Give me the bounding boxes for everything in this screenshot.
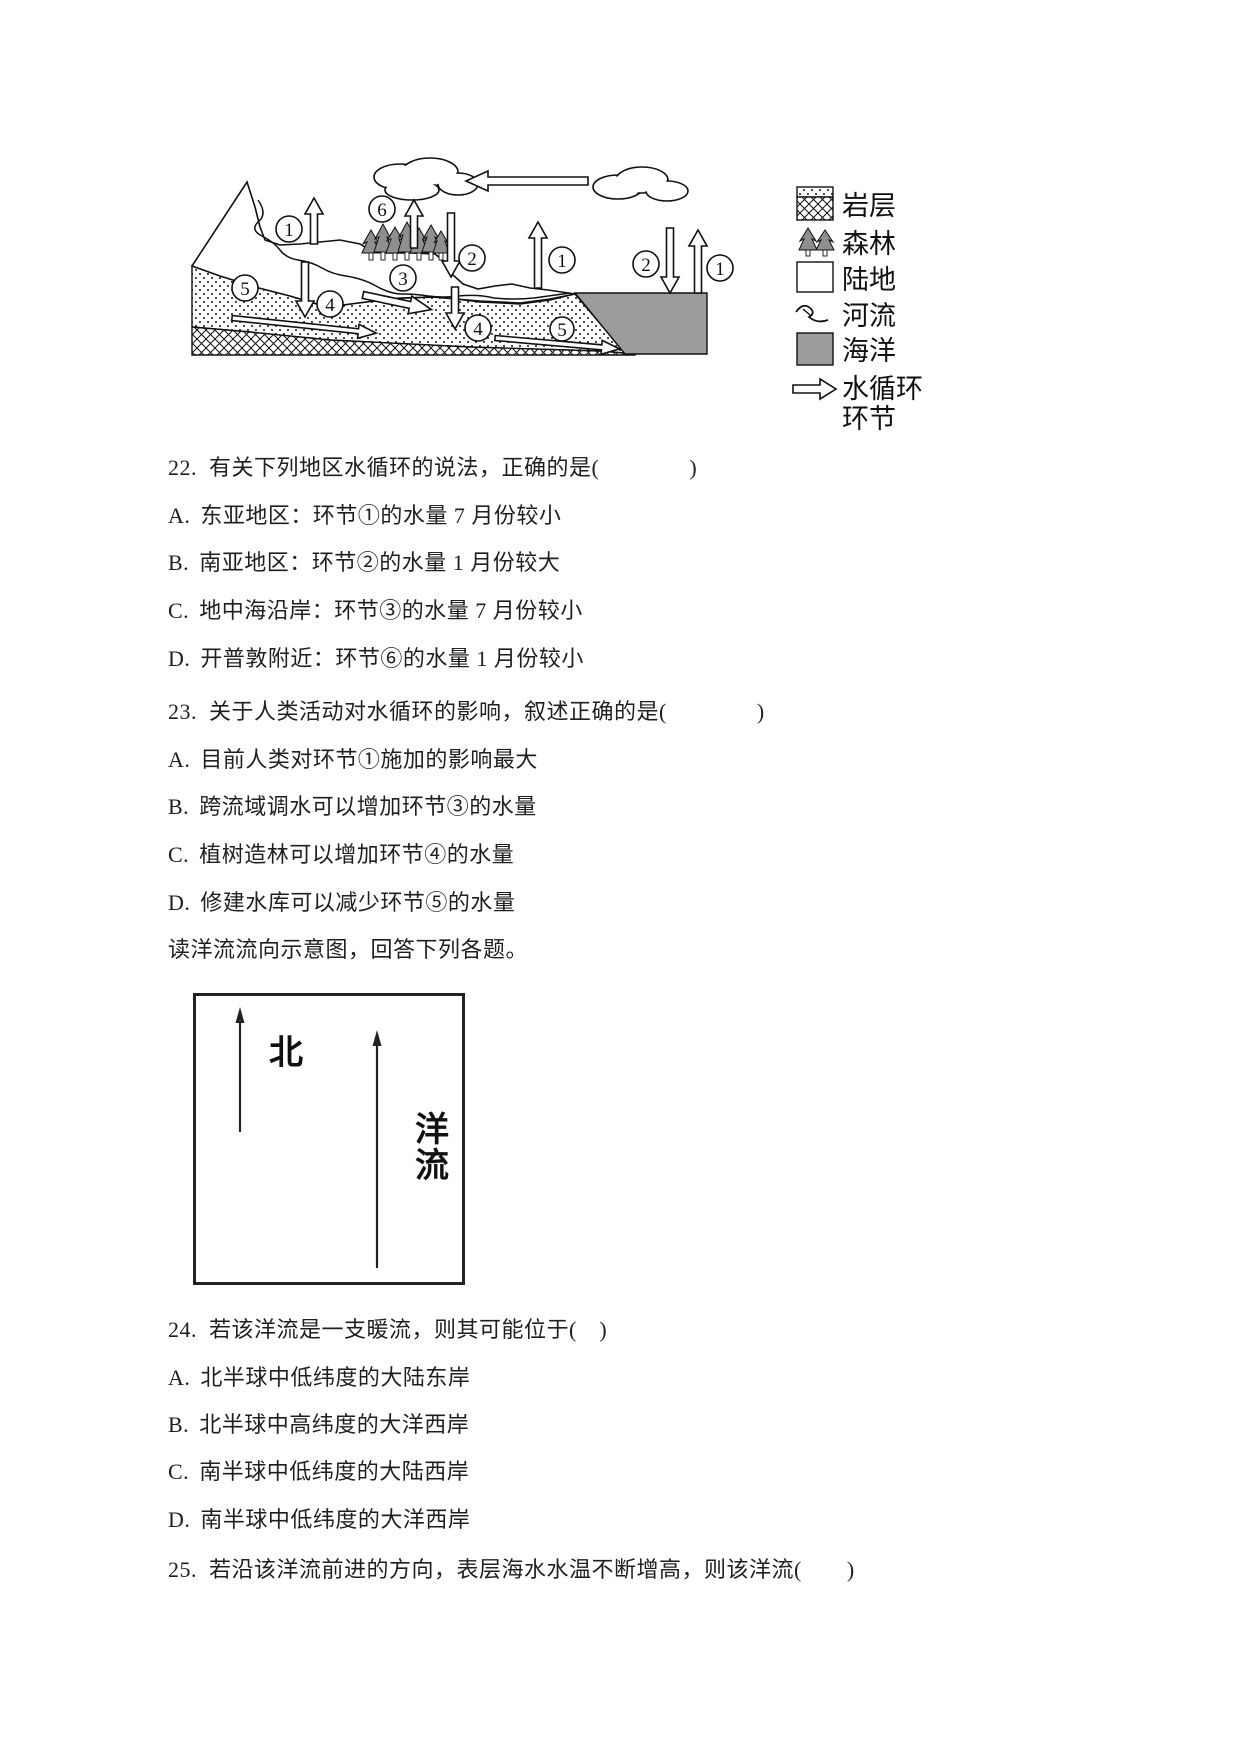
cloud-left bbox=[374, 158, 478, 200]
question-22-text: 有关下列地区水循环的说法，正确的是( ) bbox=[209, 455, 697, 480]
legend-land-label: 陆地 bbox=[842, 265, 896, 295]
question-22-option-a: A.东亚地区：环节①的水量 7 月份较小 bbox=[168, 502, 561, 530]
legend-cycle-label-2: 环节 bbox=[842, 404, 896, 434]
option-label: D. bbox=[168, 889, 190, 917]
question-23-stem: 23.关于人类活动对水循环的影响，叙述正确的是( ) bbox=[168, 698, 765, 726]
vapor-transport-arrow bbox=[466, 171, 588, 191]
link-1-label: 1 bbox=[284, 220, 294, 241]
legend-river-swatch bbox=[796, 306, 828, 322]
question-23-option-a: A.目前人类对环节①施加的影响最大 bbox=[168, 746, 538, 774]
link-3-label: 3 bbox=[398, 269, 408, 290]
option-text: 东亚地区：环节①的水量 7 月份较小 bbox=[200, 503, 561, 528]
option-text: 修建水库可以减少环节⑤的水量 bbox=[200, 890, 515, 915]
option-text: 开普敦附近：环节⑥的水量 1 月份较小 bbox=[200, 646, 584, 671]
legend-rock-label: 岩层 bbox=[842, 191, 896, 221]
question-22-number: 22. bbox=[168, 454, 197, 482]
option-label: A. bbox=[168, 1364, 190, 1392]
current-label-char2: 流 bbox=[415, 1147, 449, 1185]
option-label: A. bbox=[168, 502, 190, 530]
link-2b-label: 2 bbox=[641, 255, 651, 276]
legend-rock-swatch bbox=[797, 187, 833, 220]
option-text: 南半球中低纬度的大洋西岸 bbox=[200, 1507, 470, 1532]
option-label: D. bbox=[168, 1506, 190, 1534]
option-label: B. bbox=[168, 793, 189, 821]
question-24-text: 若该洋流是一支暖流，则其可能位于( ) bbox=[209, 1317, 607, 1342]
legend-river-branch bbox=[803, 309, 810, 315]
option-label: C. bbox=[168, 841, 189, 869]
question-25-stem: 25.若沿该洋流前进的方向，表层海水水温不断增高，则该洋流( ) bbox=[168, 1556, 855, 1584]
ocean-current-figure: 北 洋 流 bbox=[193, 993, 465, 1285]
option-label: B. bbox=[168, 1411, 189, 1439]
legend-ocean-swatch bbox=[797, 333, 833, 365]
legend-land-swatch bbox=[797, 262, 833, 292]
question-25-number: 25. bbox=[168, 1556, 197, 1584]
question-24-option-d: D.南半球中低纬度的大洋西岸 bbox=[168, 1506, 470, 1534]
link-4-label: 4 bbox=[325, 295, 335, 316]
question-23-text: 关于人类活动对水循环的影响，叙述正确的是( ) bbox=[209, 699, 765, 724]
legend-forest-swatch bbox=[799, 228, 834, 256]
option-text: 北半球中低纬度的大陆东岸 bbox=[200, 1365, 470, 1390]
question-25-text: 若沿该洋流前进的方向，表层海水水温不断增高，则该洋流( ) bbox=[209, 1557, 855, 1582]
option-text: 目前人类对环节①施加的影响最大 bbox=[200, 747, 538, 772]
link-5b-label: 5 bbox=[557, 320, 567, 341]
question-24-option-b: B.北半球中高纬度的大洋西岸 bbox=[168, 1411, 469, 1439]
water-cycle-figure: 1 6 2 3 1 2 1 4 4 5 5 岩层 bbox=[170, 132, 950, 437]
passage-intro: 读洋流流向示意图，回答下列各题。 bbox=[168, 936, 528, 964]
water-cycle-diagram: 1 6 2 3 1 2 1 4 4 5 5 岩层 bbox=[170, 132, 950, 437]
option-text: 跨流域调水可以增加环节③的水量 bbox=[199, 794, 537, 819]
legend-cycle-arrow-swatch bbox=[793, 379, 836, 399]
question-22-option-b: B.南亚地区：环节②的水量 1 月份较大 bbox=[168, 549, 560, 577]
legend-cycle-label-1: 水循环 bbox=[842, 374, 923, 404]
link-2-label: 2 bbox=[467, 249, 477, 270]
legend: 岩层 森林 陆地 河流 海洋 水循环 环节 bbox=[793, 187, 923, 434]
option-label: D. bbox=[168, 645, 190, 673]
question-23-option-b: B.跨流域调水可以增加环节③的水量 bbox=[168, 793, 537, 821]
option-text: 南半球中低纬度的大陆西岸 bbox=[199, 1459, 469, 1484]
option-label: B. bbox=[168, 549, 189, 577]
link-6-label: 6 bbox=[377, 200, 387, 221]
current-label-char1: 洋 bbox=[415, 1111, 449, 1149]
north-label: 北 bbox=[269, 1035, 303, 1072]
question-24-option-a: A.北半球中低纬度的大陆东岸 bbox=[168, 1364, 470, 1392]
option-text: 北半球中高纬度的大洋西岸 bbox=[199, 1412, 469, 1437]
option-label: A. bbox=[168, 746, 190, 774]
question-22-option-c: C.地中海沿岸：环节③的水量 7 月份较小 bbox=[168, 597, 583, 625]
question-24-number: 24. bbox=[168, 1316, 197, 1344]
legend-ocean-label: 海洋 bbox=[842, 336, 896, 366]
question-23-option-c: C.植树造林可以增加环节④的水量 bbox=[168, 841, 514, 869]
question-23-number: 23. bbox=[168, 698, 197, 726]
cloud-right bbox=[593, 167, 688, 201]
option-text: 植树造林可以增加环节④的水量 bbox=[199, 842, 514, 867]
question-23-option-d: D.修建水库可以减少环节⑤的水量 bbox=[168, 889, 515, 917]
link-1b-label: 1 bbox=[557, 251, 567, 272]
option-text: 南亚地区：环节②的水量 1 月份较大 bbox=[199, 550, 560, 575]
legend-forest-label: 森林 bbox=[842, 229, 896, 259]
question-22-stem: 22.有关下列地区水循环的说法，正确的是( ) bbox=[168, 454, 697, 482]
option-text: 地中海沿岸：环节③的水量 7 月份较小 bbox=[199, 598, 583, 623]
exam-page: 1 6 2 3 1 2 1 4 4 5 5 岩层 bbox=[0, 0, 1241, 1754]
link-4b-label: 4 bbox=[473, 319, 483, 340]
link-5-label: 5 bbox=[240, 279, 250, 300]
question-24-stem: 24.若该洋流是一支暖流，则其可能位于( ) bbox=[168, 1316, 607, 1344]
ocean-current-diagram: 北 洋 流 bbox=[193, 993, 465, 1285]
option-label: C. bbox=[168, 597, 189, 625]
question-24-option-c: C.南半球中低纬度的大陆西岸 bbox=[168, 1458, 469, 1486]
legend-river-label: 河流 bbox=[842, 301, 896, 331]
option-label: C. bbox=[168, 1458, 189, 1486]
link-1c-label: 1 bbox=[715, 259, 725, 280]
question-22-option-d: D.开普敦附近：环节⑥的水量 1 月份较小 bbox=[168, 645, 584, 673]
